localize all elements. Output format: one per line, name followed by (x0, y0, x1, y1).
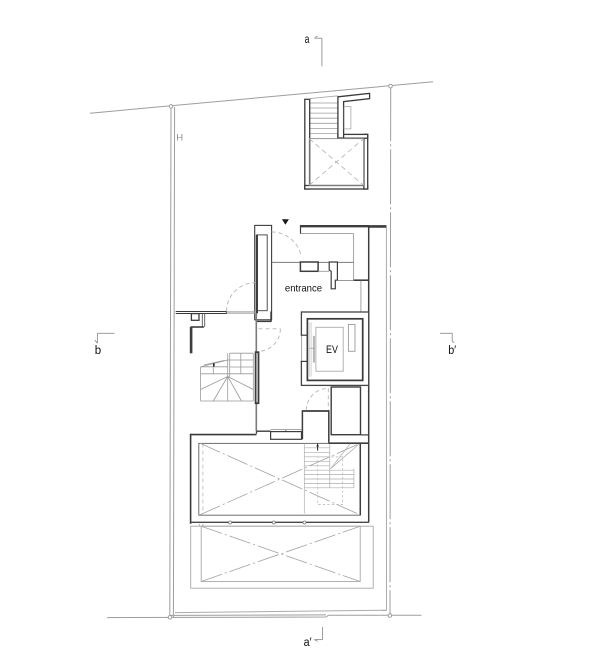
svg-text:entrance: entrance (285, 284, 322, 295)
svg-text:a′: a′ (304, 637, 312, 649)
svg-text:b′: b′ (448, 345, 456, 357)
svg-text:H: H (176, 132, 183, 143)
svg-text:a: a (305, 34, 310, 46)
svg-text:EV: EV (326, 344, 338, 356)
svg-text:b: b (95, 345, 101, 357)
